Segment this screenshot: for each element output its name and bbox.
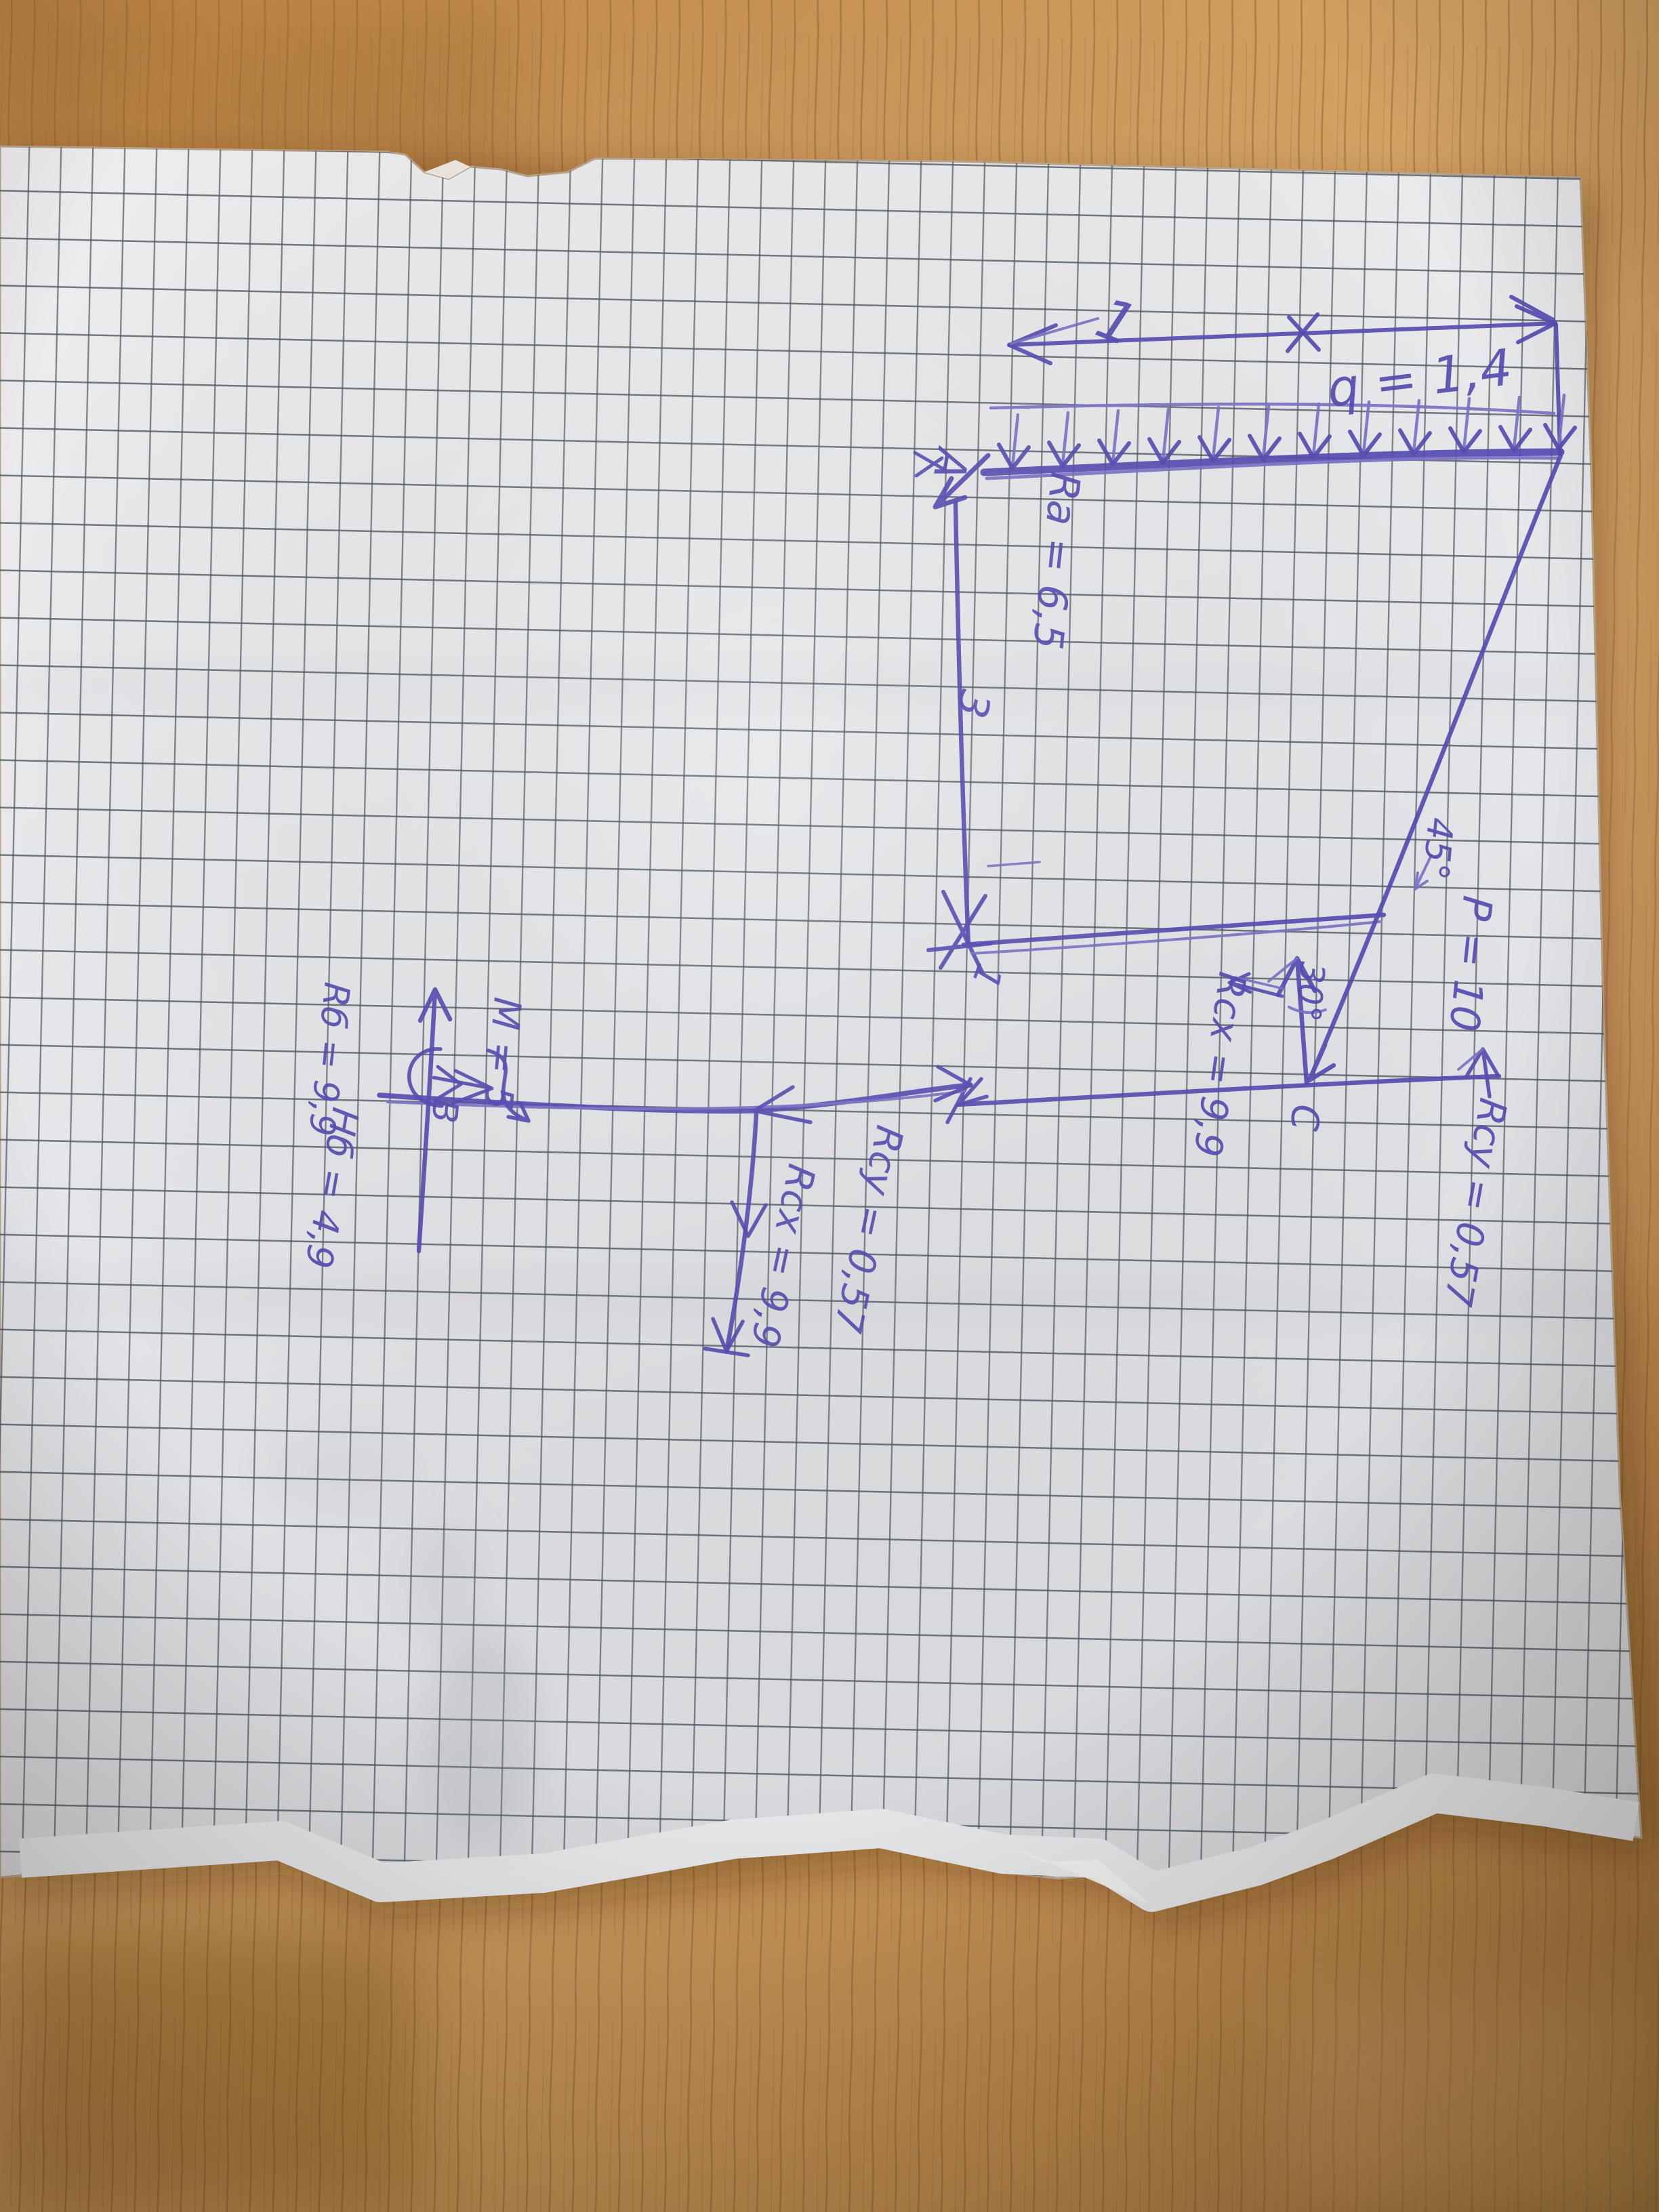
scene: 1 q = 1,4 A Ra = 6,5 3 1 30° 45° P = 10: [0, 0, 1659, 2212]
photo-of-handwritten-diagram: 1 q = 1,4 A Ra = 6,5 3 1 30° 45° P = 10: [0, 0, 1659, 2212]
photo-vignette: [0, 0, 1659, 2212]
